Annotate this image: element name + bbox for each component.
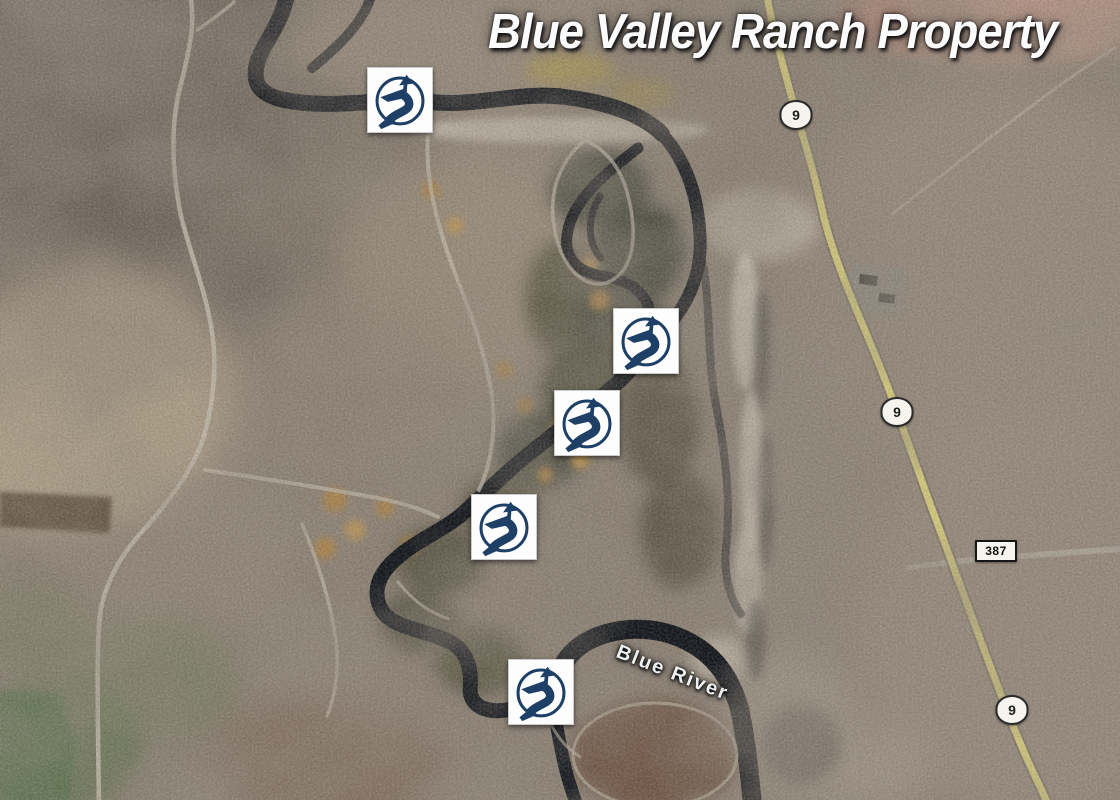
- highway-9-shield: 9: [996, 695, 1029, 725]
- road-plate-number: 387: [985, 544, 1007, 558]
- highway-9-shield: 9: [780, 100, 813, 130]
- river-flow-icon: [557, 393, 617, 453]
- county-road-387-plate: 387: [975, 540, 1017, 562]
- river-access-marker[interactable]: [554, 390, 620, 456]
- river-access-marker[interactable]: [508, 659, 574, 725]
- highway-shield-number: 9: [893, 404, 901, 420]
- river-access-marker[interactable]: [613, 308, 679, 374]
- river-access-marker[interactable]: [367, 67, 433, 133]
- river-flow-icon: [511, 662, 571, 722]
- satellite-map: Blue Valley Ranch Property Blue River: [0, 0, 1120, 800]
- map-title: Blue Valley Ranch Property: [488, 4, 1057, 60]
- highway-shield-number: 9: [1008, 702, 1016, 718]
- river-flow-icon: [370, 70, 430, 130]
- highway-9-shield: 9: [881, 397, 914, 427]
- river-flow-icon: [474, 497, 534, 557]
- river-flow-icon: [616, 311, 676, 371]
- highway-shield-number: 9: [792, 107, 800, 123]
- river-access-marker[interactable]: [471, 494, 537, 560]
